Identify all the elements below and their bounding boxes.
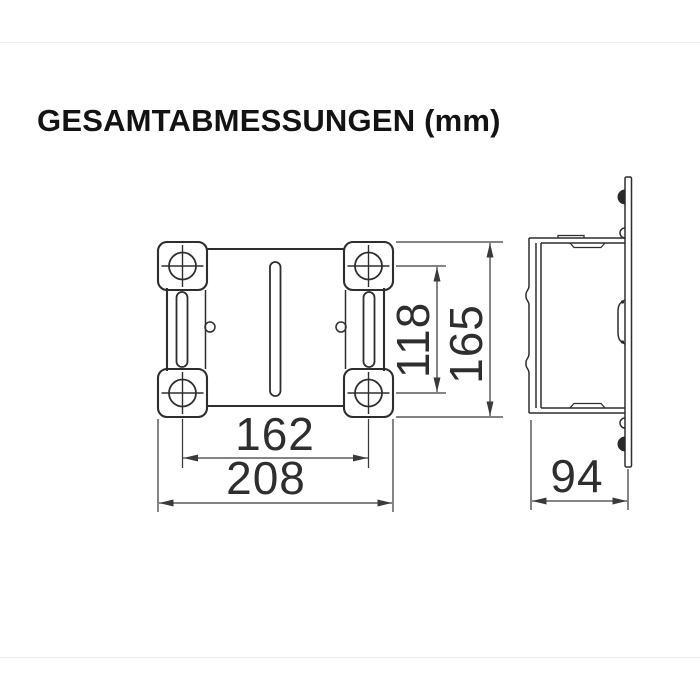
side-view — [526, 177, 632, 467]
mounting-hole-bottom-right — [348, 372, 390, 414]
mounting-hole-bottom-left — [162, 372, 204, 414]
dim-label-overall-depth: 94 — [550, 450, 603, 502]
arrow-right-icon — [613, 498, 628, 505]
arrow-left-icon — [532, 498, 547, 505]
side-plate-edge — [625, 177, 632, 467]
slot-center — [270, 262, 281, 396]
arrow-up-icon — [434, 267, 441, 282]
slot-left — [177, 292, 188, 367]
side-center-emboss — [618, 300, 625, 344]
side-center-emboss-end-bottom — [621, 340, 624, 343]
technical-drawing: 162 208 118 165 — [0, 0, 700, 700]
dim-label-hole-spacing-vertical: 118 — [387, 302, 439, 378]
arrow-right-icon — [353, 455, 368, 462]
dim-label-overall-height: 165 — [440, 304, 492, 384]
mounting-hole-top-right — [348, 245, 390, 287]
dimension-overall-depth: 94 — [531, 420, 628, 510]
plate-body-outline — [167, 249, 384, 406]
side-bottom-flange — [529, 404, 625, 414]
front-view — [158, 242, 393, 417]
side-center-emboss-end-top — [621, 300, 624, 303]
mounting-hole-top-left — [162, 245, 204, 287]
arrow-right-icon — [378, 500, 393, 507]
side-boss-bottom — [618, 437, 626, 452]
arrow-left-icon — [159, 500, 174, 507]
dimension-hole-spacing-vertical: 118 — [387, 266, 446, 393]
dimension-drawing-page: GESAMTABMESSUNGEN (mm) — [0, 0, 700, 700]
side-top-flange — [529, 236, 625, 248]
arrow-left-icon — [184, 455, 199, 462]
arrow-up-icon — [487, 243, 494, 258]
dim-label-overall-width: 208 — [226, 452, 306, 504]
side-box-outer-wall — [526, 238, 529, 413]
side-boss-top — [618, 190, 626, 205]
slot-right — [364, 292, 375, 367]
pilot-hole-left — [205, 322, 215, 332]
pilot-hole-right — [336, 322, 346, 332]
arrow-down-icon — [487, 402, 494, 417]
